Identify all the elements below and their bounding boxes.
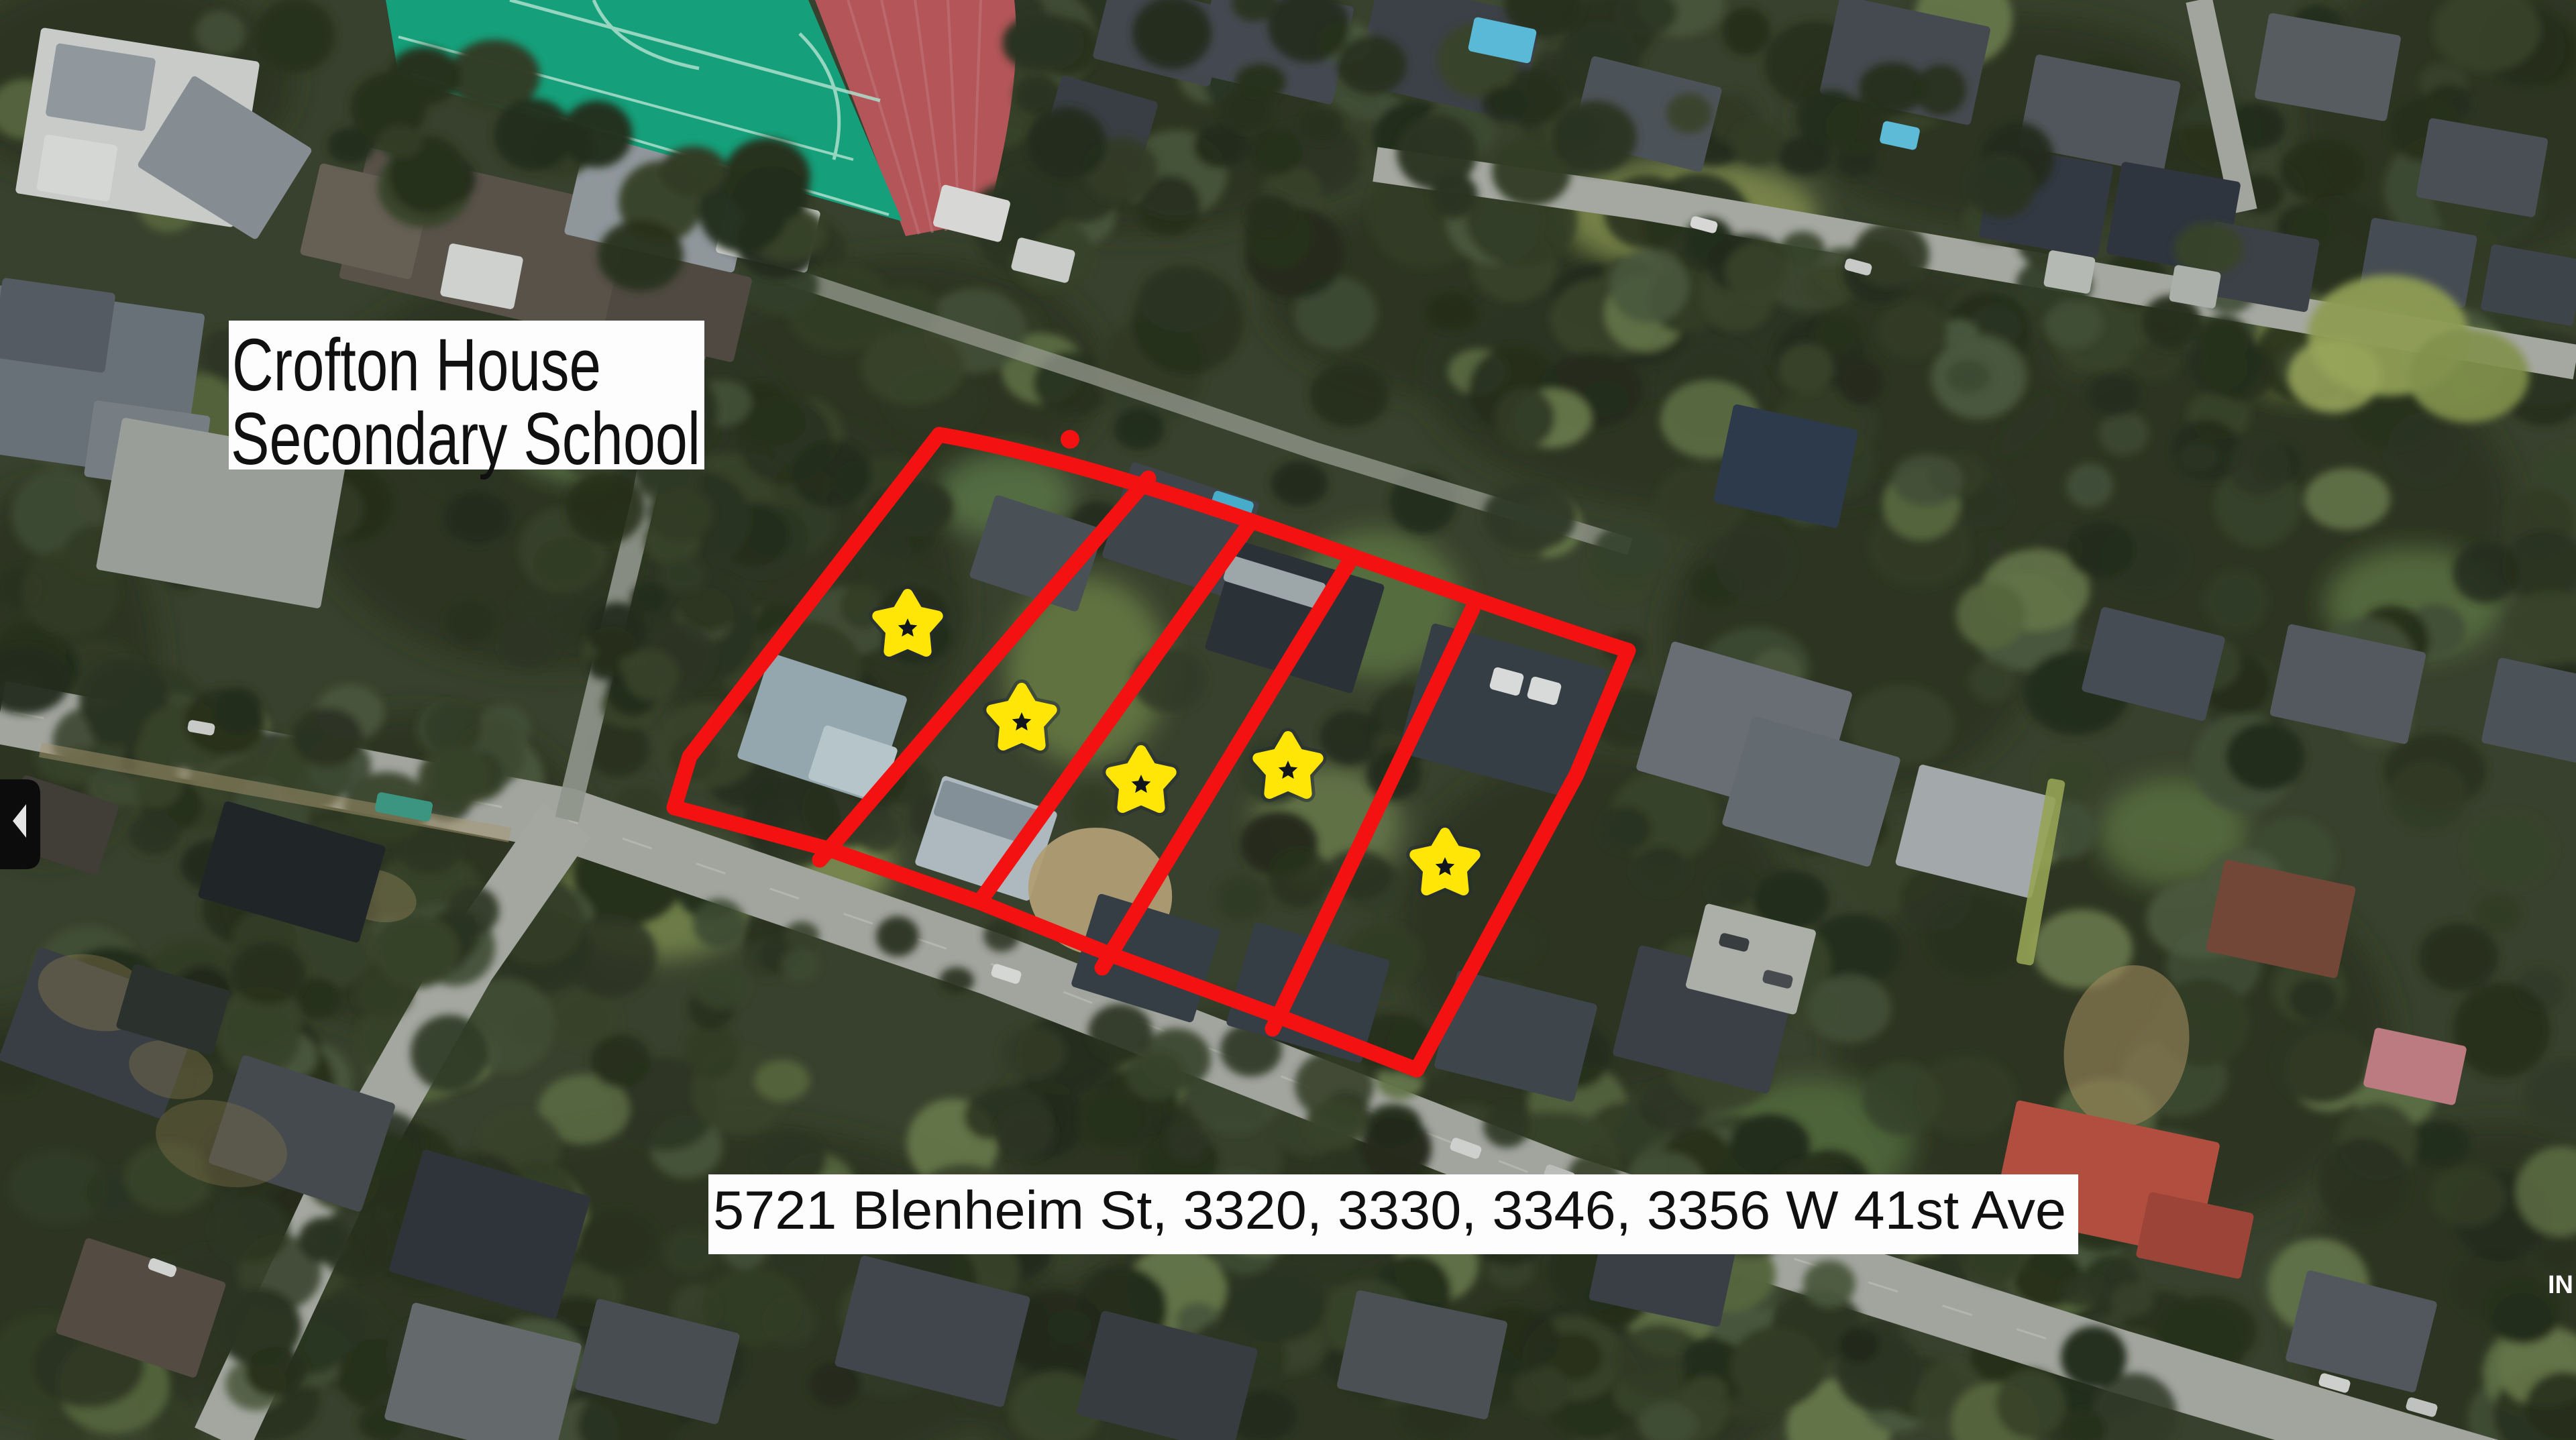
svg-text:IN: IN [2548,1271,2573,1299]
svg-text:5721 Blenheim St, 3320, 3330,: 5721 Blenheim St, 3320, 3330, 3346, 3356… [713,1180,2066,1241]
svg-text:Crofton House: Crofton House [232,324,601,406]
svg-text:Secondary School: Secondary School [231,398,700,480]
